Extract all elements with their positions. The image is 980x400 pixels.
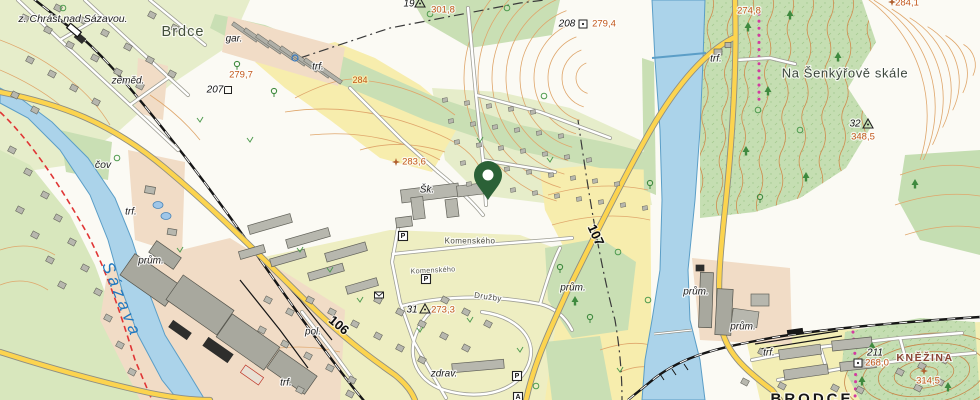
house: [442, 98, 448, 103]
svg-text:A: A: [515, 394, 520, 400]
house: [576, 197, 582, 202]
house: [476, 143, 482, 148]
boxdot-symbol: [579, 20, 587, 28]
house: [470, 122, 476, 127]
map-label: Šk.: [420, 183, 434, 196]
house: [492, 125, 498, 130]
building: [445, 198, 459, 217]
house: [464, 101, 470, 106]
house: [620, 203, 626, 208]
house: [586, 158, 592, 163]
house: [520, 149, 526, 154]
pbox-symbol: P: [422, 275, 431, 284]
map-label: pol.: [304, 327, 321, 338]
map-label: 31: [406, 305, 417, 316]
house: [532, 191, 538, 196]
map-label: zdrav.: [430, 369, 458, 380]
map-label: Komenského: [445, 237, 496, 246]
house: [460, 161, 466, 166]
house: [514, 128, 520, 133]
map-label: prům.: [729, 321, 756, 333]
map-label: 273,3: [431, 305, 455, 316]
map-label: čov: [95, 159, 112, 171]
map-label: 279,7: [229, 70, 253, 81]
house: [526, 170, 532, 175]
map-label: 274,8: [737, 6, 761, 17]
building: [699, 272, 714, 327]
house: [570, 176, 576, 181]
house: [498, 146, 504, 151]
house: [530, 110, 536, 115]
pbox-symbol: P: [399, 232, 408, 241]
building: [144, 186, 155, 195]
pin-dot: [483, 170, 494, 181]
svg-text:P: P: [515, 373, 520, 380]
building: [395, 216, 412, 228]
map-label: Na Šenkýřově skále: [782, 66, 908, 81]
envelope-symbol: [375, 292, 384, 298]
house: [564, 155, 570, 160]
map-label: KNĚŽINA: [896, 351, 953, 364]
map-label: BRODCE: [770, 391, 853, 400]
map-label: 348,5: [851, 132, 875, 143]
boxdot-symbol: [854, 359, 862, 367]
house: [542, 152, 548, 157]
map-label: 283,6: [402, 157, 426, 168]
map-label: prům.: [137, 255, 164, 267]
map-label: 32: [849, 119, 861, 130]
map-label: prům.: [559, 282, 586, 294]
map-label: trf.: [710, 54, 722, 65]
house: [642, 206, 648, 211]
building: [751, 294, 769, 306]
house: [536, 131, 542, 136]
topographic-map[interactable]: PPPA z. Chrást nad Sázavou.Brdcegar.země…: [0, 0, 980, 400]
house: [486, 104, 492, 109]
map-label: gar.: [226, 34, 243, 45]
map-label: 314,5: [916, 376, 940, 387]
house: [454, 140, 460, 145]
house: [448, 119, 454, 124]
house: [504, 167, 510, 172]
house: [548, 173, 554, 178]
house: [508, 107, 514, 112]
house: [558, 134, 564, 139]
map-label: trf.: [312, 62, 324, 73]
house: [598, 200, 604, 205]
building: [725, 43, 731, 48]
map-label: 301,8: [431, 5, 455, 16]
house: [592, 179, 598, 184]
svg-text:P: P: [424, 276, 429, 283]
map-label: trf.: [125, 207, 137, 218]
water-tank: [161, 213, 171, 220]
map-label: 284,1: [895, 0, 919, 9]
map-label: trf.: [763, 348, 775, 359]
svg-text:P: P: [401, 233, 406, 240]
map-label: Brdce: [162, 24, 205, 40]
pbox-symbol: P: [513, 372, 522, 381]
abox-symbol: A: [514, 393, 523, 400]
building: [167, 228, 177, 235]
building: [411, 196, 426, 219]
map-label: 207: [206, 85, 224, 96]
house: [466, 182, 472, 187]
map-label: zeměd.: [111, 76, 145, 87]
building: [696, 265, 704, 271]
water-tank: [153, 202, 163, 209]
map-label: z. Chrást nad Sázavou.: [17, 13, 127, 25]
map-label: 19: [403, 0, 415, 10]
map-label: 208: [558, 19, 576, 30]
map-label: 284: [352, 75, 367, 85]
map-label: prům.: [682, 286, 709, 298]
house: [554, 194, 560, 199]
map-label: 268,0: [865, 358, 889, 369]
map-label: 279,4: [592, 19, 616, 30]
map-label: trf.: [280, 378, 292, 389]
house: [510, 188, 516, 193]
house: [614, 182, 620, 187]
map-canvas[interactable]: PPPA z. Chrást nad Sázavou.Brdcegar.země…: [0, 0, 980, 400]
